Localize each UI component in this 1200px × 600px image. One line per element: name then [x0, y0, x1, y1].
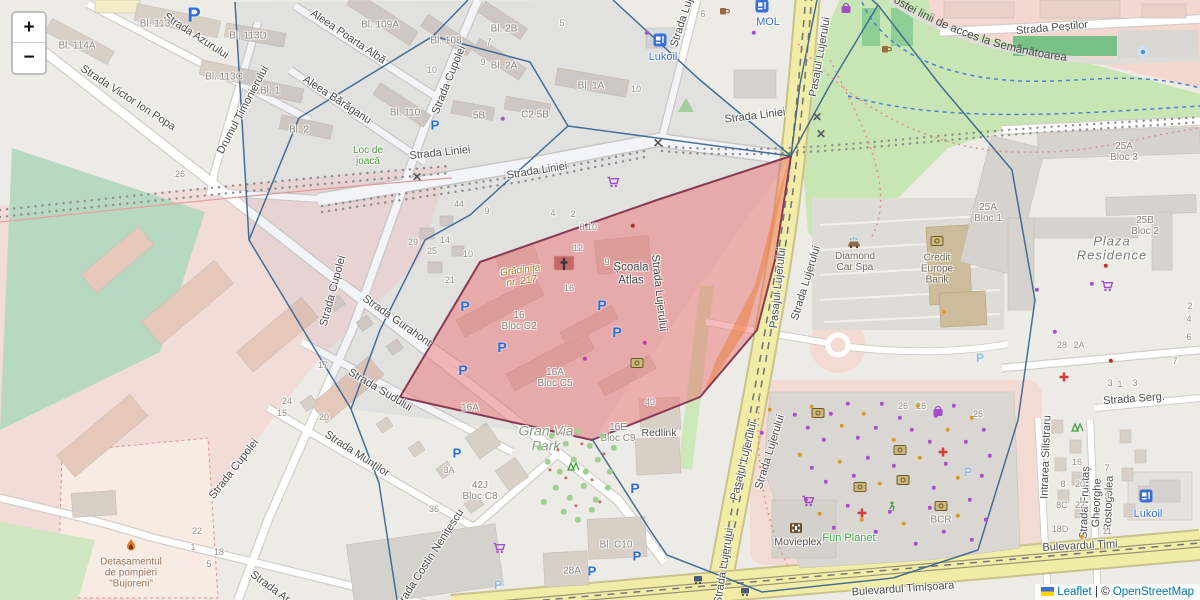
basemap: ostei linii de acces la Semănătoarea — [0, 0, 1200, 600]
ukraine-flag-icon — [1041, 587, 1054, 596]
parking-lot-top-right — [1118, 30, 1198, 60]
map-canvas[interactable]: ostei linii de acces la Semănătoarea Str… — [0, 0, 1200, 600]
zoom-out-button[interactable]: − — [13, 43, 45, 73]
attribution-separator: | — [1092, 586, 1101, 598]
zoom-control: + − — [11, 11, 47, 75]
leaflet-link[interactable]: Leaflet — [1057, 586, 1092, 598]
zoom-in-button[interactable]: + — [13, 13, 45, 43]
openstreetmap-link[interactable]: OpenStreetMap — [1113, 586, 1194, 598]
roundabout — [828, 335, 848, 355]
copyright-symbol: © — [1101, 586, 1113, 598]
attribution: Leaflet | © OpenStreetMap — [1035, 584, 1200, 600]
